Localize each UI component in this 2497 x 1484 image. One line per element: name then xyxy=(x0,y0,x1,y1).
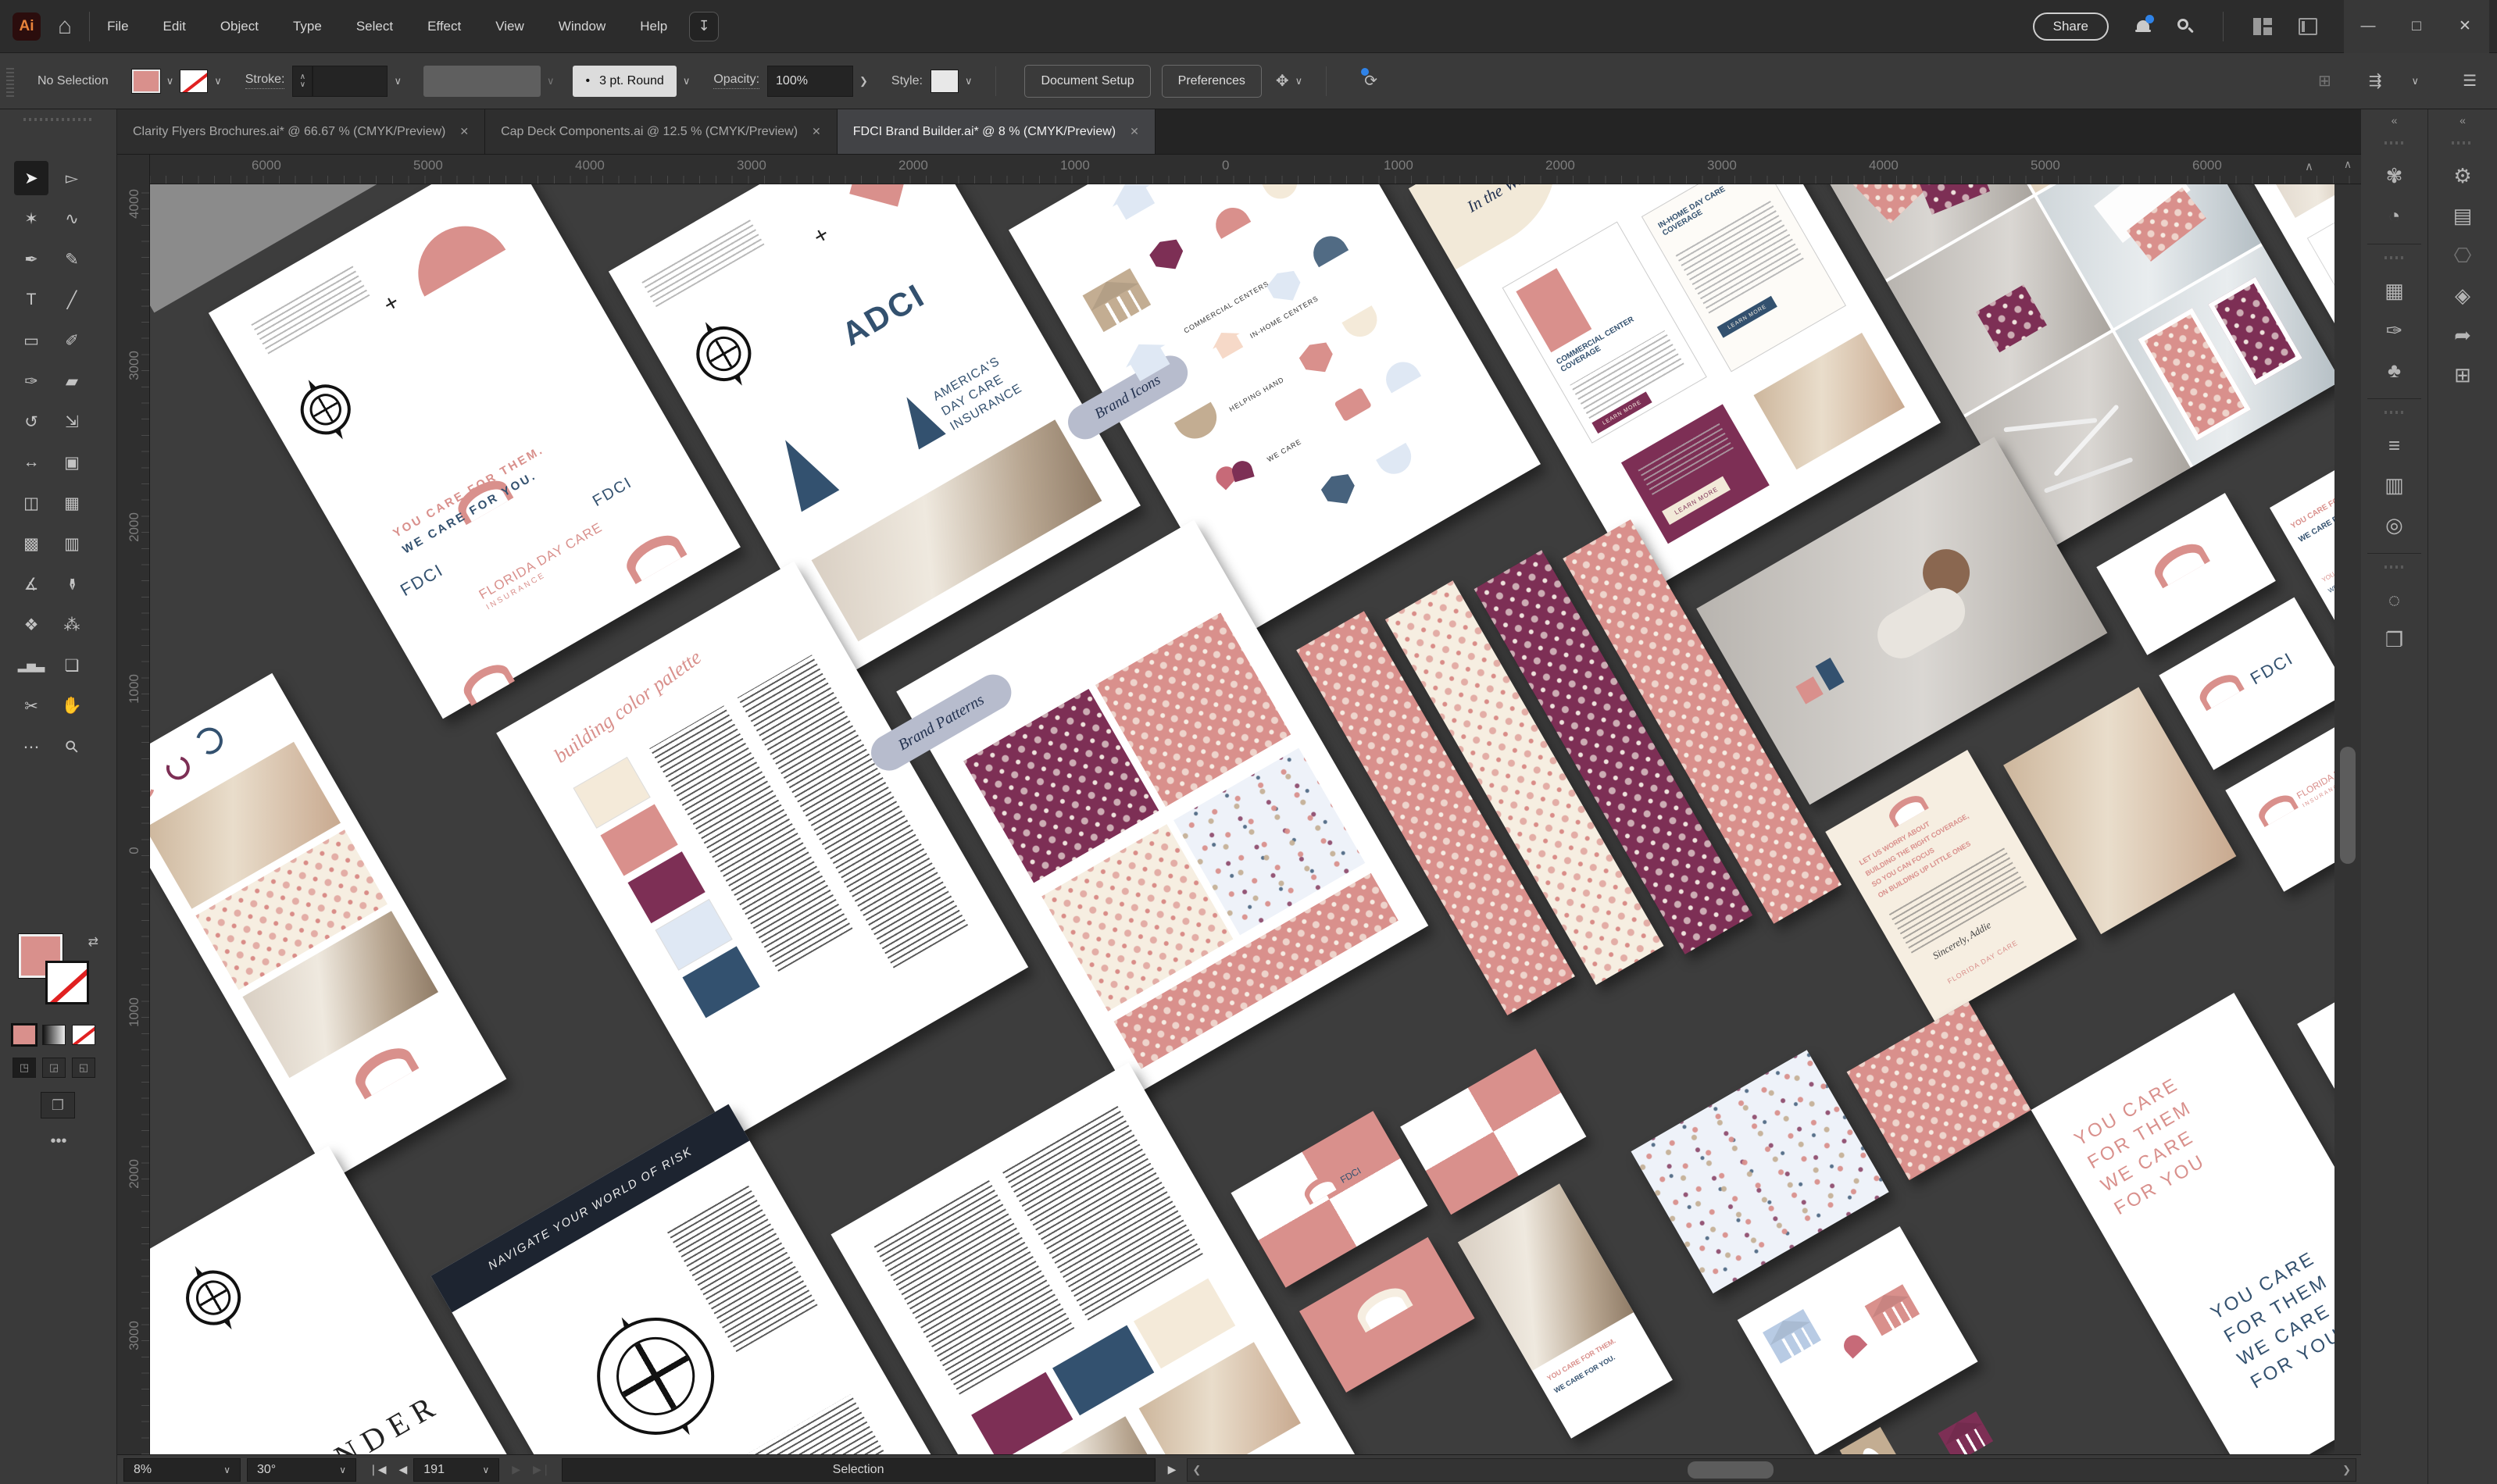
toy-block xyxy=(1816,658,1845,690)
scroll-left-icon[interactable]: ❮ xyxy=(1192,1464,1201,1476)
photo-tile xyxy=(1753,333,1905,469)
width-tool[interactable]: ↔ xyxy=(14,445,48,480)
tagline-pink: YOU CARE FOR THEM. xyxy=(391,443,546,540)
stroke-color-swatch[interactable] xyxy=(180,70,208,93)
fdci-wordmark: FDCI xyxy=(2247,648,2297,689)
zoom-tool[interactable]: ⚲ xyxy=(48,722,96,771)
artboard-chevron-icon: ∨ xyxy=(482,1464,489,1475)
ruler-label: 4000 xyxy=(127,188,142,219)
panel-drag-handle[interactable] xyxy=(2452,137,2474,148)
screen-mode-button[interactable]: ❐ xyxy=(41,1092,75,1118)
ruler-label: 2000 xyxy=(127,512,142,543)
pink-semicircle xyxy=(401,209,505,297)
vertical-ruler[interactable]: 4000 3000 2000 1000 0 1000 2000 3000 xyxy=(117,184,150,1454)
opacity-label[interactable]: Opacity: xyxy=(713,73,759,89)
next-artboard-button[interactable]: ▶ xyxy=(512,1463,520,1476)
sun-logo xyxy=(2255,790,2299,828)
sun-logo xyxy=(459,658,515,705)
sun-logo xyxy=(620,527,688,584)
select-similar-icon[interactable]: ✥ xyxy=(1276,71,1289,91)
opacity-value[interactable]: 100% xyxy=(767,66,853,97)
fill-stroke-proxy: ⇄ xyxy=(19,934,97,1009)
horizontal-ruler[interactable]: 6000 5000 4000 3000 2000 1000 0 1000 200… xyxy=(117,155,2361,184)
sun-glyph xyxy=(1352,1281,1413,1332)
house-icon xyxy=(1083,268,1152,332)
rotation-dropdown[interactable]: 30° ∨ xyxy=(247,1458,356,1482)
ruler-label: 3000 xyxy=(1707,158,1737,173)
scroll-up-icon[interactable]: ∧ xyxy=(2334,158,2361,171)
first-artboard-button[interactable]: ❘◀ xyxy=(369,1463,387,1476)
workspace-switcher-icon[interactable] xyxy=(2253,18,2272,35)
navy-block xyxy=(1052,1325,1154,1416)
close-button[interactable]: ✕ xyxy=(2441,17,2489,35)
ruler-label: 3000 xyxy=(737,158,766,173)
toolbar-drag-handle[interactable] xyxy=(23,114,93,125)
ruler-label: 3000 xyxy=(127,350,142,381)
artboard-girl-drawing-strip[interactable]: YOU CARE FOR THEM. WE CARE FOR YOU. xyxy=(1458,1184,1673,1439)
control-bar: No Selection ∨ ∨ Stroke: ∧ ∨ ∨ ∨ • 3 pt.… xyxy=(0,53,2497,109)
brushes-panel-icon[interactable]: ✑ xyxy=(2361,319,2427,343)
body-text xyxy=(641,218,765,308)
ruler-label: 0 xyxy=(1222,158,1229,173)
panel-separator xyxy=(2367,553,2421,554)
swatches-panel-icon[interactable]: ▦ xyxy=(2361,279,2427,303)
tab-close-icon[interactable]: ✕ xyxy=(812,125,821,138)
caption-we-care: WE CARE xyxy=(1266,437,1302,463)
gradient-tool[interactable]: ▥ xyxy=(55,526,89,561)
style-chevron-icon[interactable]: ∨ xyxy=(959,75,979,87)
house-icon xyxy=(1938,1411,1993,1454)
type-tool[interactable]: T xyxy=(14,283,48,317)
scroll-right-icon[interactable]: ❯ xyxy=(2342,1464,2351,1476)
brush-chevron-icon: ∨ xyxy=(541,75,561,87)
pink-diamond xyxy=(849,184,910,207)
navigate-text: NAVIGATE YOUR WORLD OF RISK xyxy=(486,1144,695,1272)
fill-color-swatch[interactable] xyxy=(132,70,160,93)
divider xyxy=(2223,12,2224,41)
artboard-swirl-card[interactable] xyxy=(150,673,506,1181)
menu-help[interactable]: Help xyxy=(640,19,667,34)
artboard-number-value: 191 xyxy=(423,1463,445,1477)
horizontal-scrollbar[interactable]: ❮ ❯ xyxy=(1187,1458,2356,1482)
hand-icon xyxy=(1376,443,1417,480)
stroke-label[interactable]: Stroke: xyxy=(245,73,285,89)
symbols-panel-icon[interactable]: ♣ xyxy=(2361,359,2427,383)
stroke-weight-stepper[interactable]: ∧ ∨ xyxy=(292,66,313,97)
pattern-pouch xyxy=(1841,184,1930,223)
sun-logo xyxy=(1301,1172,1340,1205)
photo-kids xyxy=(2237,184,2334,218)
toolbar-more-icon[interactable]: ••• xyxy=(0,1133,117,1150)
selection-status: No Selection xyxy=(38,74,109,88)
search-icon[interactable] xyxy=(2177,19,2193,34)
hand-tool[interactable]: ✋ xyxy=(55,689,89,723)
home-icon[interactable]: ⌂ xyxy=(58,13,72,40)
tab-fdci-brand-builder[interactable]: FDCI Brand Builder.ai* @ 8 % (CMYK/Previ… xyxy=(838,109,1156,154)
maximize-button[interactable]: □ xyxy=(2392,18,2441,35)
stroke-chevron-down-icon[interactable]: ∨ xyxy=(208,75,228,87)
fdci-wordmark: FDCI xyxy=(590,474,636,511)
direct-selection-tool[interactable]: ▻ xyxy=(55,161,89,195)
zoom-chevron-icon: ∨ xyxy=(223,1464,230,1475)
headphones-icon xyxy=(1307,230,1349,267)
rotation-value: 30° xyxy=(257,1463,276,1477)
width-profile-bullet: • xyxy=(585,74,590,88)
stepper-up-icon[interactable]: ∧ xyxy=(300,73,305,81)
house-icon xyxy=(1763,1309,1821,1364)
current-tool-status: Selection xyxy=(562,1458,1156,1482)
ruler-label: 1000 xyxy=(1384,158,1413,173)
tab-cap-deck[interactable]: Cap Deck Components.ai @ 12.5 % (CMYK/Pr… xyxy=(485,109,838,154)
artboard-pink-pattern-card[interactable] xyxy=(1847,1002,2031,1181)
free-transform-tool[interactable]: ▣ xyxy=(55,445,89,480)
select-similar-chevron-icon[interactable]: ∨ xyxy=(1289,75,1309,87)
fdci-wordmark: FDCI xyxy=(397,560,447,601)
ruler-label: 0 xyxy=(127,835,142,866)
minimize-button[interactable]: — xyxy=(2344,18,2392,35)
compass-logo-large xyxy=(576,1297,736,1454)
toolbar: ➤ ▻ ✶ ∿ ✒ ✎ T ╱ ▭ ✐ ✑ ▰ ↺ ⇲ ↔ ▣ ◫ ▦ ▩ ▥ … xyxy=(0,109,117,1484)
draw-mode-buttons: ◳ ◲ ◱ xyxy=(13,1058,95,1078)
body-text xyxy=(666,1183,818,1352)
artboard-number-dropdown[interactable]: 191 ∨ xyxy=(413,1458,499,1482)
pattern-clutch xyxy=(1976,284,2047,352)
helping-hand-icon xyxy=(1174,402,1224,446)
stroke-proxy-swatch[interactable] xyxy=(45,961,89,1004)
menu-object[interactable]: Object xyxy=(220,19,259,34)
transparency-panel-icon[interactable]: ◎ xyxy=(2361,513,2427,537)
stroke-weight-value[interactable] xyxy=(313,66,388,97)
illustrator-logo[interactable]: Ai xyxy=(13,12,41,41)
plus-mark: + xyxy=(379,289,404,319)
gradient-panel-icon[interactable]: ▥ xyxy=(2361,473,2427,498)
menu-effect[interactable]: Effect xyxy=(427,19,461,34)
house-icon xyxy=(1208,325,1247,361)
sun-logo xyxy=(348,1040,419,1099)
stroke-panel-icon[interactable]: ≡ xyxy=(2361,433,2427,458)
color-panel-icon[interactable]: ✾ xyxy=(2361,164,2427,188)
florida-wordmark: FLORIDA DAY CARE xyxy=(477,519,605,603)
artboard-color-palette[interactable]: building color palette xyxy=(496,562,1028,1140)
compass-logo xyxy=(176,1261,251,1336)
panel-toggle-icon[interactable] xyxy=(2299,18,2317,35)
opacity-expand-icon[interactable]: ❯ xyxy=(853,75,874,87)
panel-separator xyxy=(2367,398,2421,399)
right-dock: « ✾ ◔ ▦ ✑ ♣ ≡ ▥ ◎ ◌ ❐ « ⚙ ▤ ⎔ ◈ ➦ ⊞ xyxy=(2361,109,2497,1484)
divider xyxy=(1326,66,1327,96)
hand-icon xyxy=(1341,305,1383,343)
notifications-bell-icon[interactable] xyxy=(2135,19,2151,34)
horizontal-scroll-thumb[interactable] xyxy=(1688,1461,1774,1479)
ruler-corner[interactable] xyxy=(117,155,150,184)
status-expand-icon[interactable]: ▶ xyxy=(1168,1463,1177,1476)
arrange-chevron-icon[interactable]: ∨ xyxy=(2406,75,2426,87)
compass-logo xyxy=(291,376,359,444)
ruler-label: 1000 xyxy=(127,997,142,1028)
swap-fill-stroke-icon[interactable]: ⇄ xyxy=(88,934,98,950)
ruler-label: 1000 xyxy=(127,673,142,705)
a-mark xyxy=(766,429,839,512)
ruler-label: 1000 xyxy=(1060,158,1090,173)
shield-icon xyxy=(1146,234,1189,277)
color-button[interactable] xyxy=(13,1025,36,1045)
rotated-scene: + YOU CARE FOR THEM. WE CARE FOR YOU. FD… xyxy=(150,184,2334,1454)
panel-drag-handle[interactable] xyxy=(2384,252,2404,263)
tab-title: FDCI Brand Builder.ai* @ 8 % (CMYK/Previ… xyxy=(853,125,1116,139)
cloud-sync-icon[interactable]: ⟳ xyxy=(1364,71,1377,91)
arch-icon xyxy=(1840,1427,1898,1454)
ruler-label: 4000 xyxy=(575,158,605,173)
search-lens xyxy=(2177,19,2188,30)
welcome-line2: BUILDING THE RIGHT COVERAGE, xyxy=(1864,812,1970,877)
pen xyxy=(2003,418,2097,433)
mesh-tool[interactable]: ▩ xyxy=(14,526,48,561)
layers-panel-icon[interactable]: ◈ xyxy=(2428,284,2497,308)
canvas[interactable]: + YOU CARE FOR THEM. WE CARE FOR YOU. FD… xyxy=(150,184,2334,1454)
width-profile-chevron-icon[interactable]: ∨ xyxy=(677,75,697,87)
collapse-panel-icon[interactable]: « xyxy=(2428,109,2497,133)
slice-tool[interactable]: ✂ xyxy=(14,689,48,723)
hand-icon xyxy=(1262,184,1303,205)
divider xyxy=(89,12,90,41)
appearance-panel-icon[interactable]: ◌ xyxy=(2361,588,2427,612)
house-icon xyxy=(1106,184,1159,223)
ruler-label: 6000 xyxy=(252,158,281,173)
tab-title: Cap Deck Components.ai @ 12.5 % (CMYK/Pr… xyxy=(501,125,798,139)
fill-chevron-down-icon[interactable]: ∨ xyxy=(160,75,180,87)
headphones-icon xyxy=(1380,355,1421,393)
brand-icons-label: Brand Icons xyxy=(1062,349,1194,445)
ruler-label: 2000 xyxy=(1545,158,1575,173)
document-setup-button[interactable]: Document Setup xyxy=(1024,65,1150,98)
rotate-tool[interactable]: ↺ xyxy=(14,405,48,439)
house-icon xyxy=(1865,1284,1920,1336)
body-text xyxy=(251,265,370,355)
panel-drag-handle[interactable] xyxy=(2384,137,2404,148)
shape-builder-tool[interactable]: ◫ xyxy=(14,486,48,520)
color-mode-buttons xyxy=(13,1025,95,1045)
compass-logo xyxy=(687,316,762,391)
caption-helping-hand: HELPING HAND xyxy=(1228,376,1286,413)
menu-select[interactable]: Select xyxy=(356,19,393,34)
menu-edit[interactable]: Edit xyxy=(163,19,186,34)
panel-drag-handle[interactable] xyxy=(2384,407,2404,418)
menu-bar: File Edit Object Type Select Effect View… xyxy=(107,19,667,34)
swirl-doodle xyxy=(191,722,227,758)
paintbrush-tool[interactable]: ✐ xyxy=(55,323,89,358)
pen-tool[interactable]: ✒ xyxy=(14,242,48,276)
stroke-weight-chevron-icon[interactable]: ∨ xyxy=(388,75,408,87)
menu-file[interactable]: File xyxy=(107,19,128,34)
perspective-grid-tool[interactable]: ▦ xyxy=(55,486,89,520)
panel-drag-handle[interactable] xyxy=(2384,562,2404,573)
artboard-icons-scatter[interactable] xyxy=(1738,1226,1978,1454)
tab-close-icon[interactable]: ✕ xyxy=(1130,125,1139,138)
ruler-label: 5000 xyxy=(2031,158,2060,173)
panel-separator xyxy=(2367,244,2421,244)
menu-view[interactable]: View xyxy=(495,19,524,34)
cream-block xyxy=(1134,1279,1235,1369)
zoom-level-dropdown[interactable]: 8% ∨ xyxy=(123,1458,241,1482)
vertical-scrollbar[interactable]: ∧ xyxy=(2334,184,2361,1454)
artboards-panel-icon[interactable]: ⊞ xyxy=(2428,363,2497,387)
plus-mark: + xyxy=(809,221,834,251)
ruler-label: 5000 xyxy=(413,158,443,173)
draw-normal-mode[interactable]: ◳ xyxy=(13,1058,36,1078)
share-button[interactable]: Share xyxy=(2033,12,2109,41)
libraries-panel-icon[interactable]: ▤ xyxy=(2428,204,2497,228)
folder-icon xyxy=(1334,387,1372,422)
stepper-down-icon[interactable]: ∨ xyxy=(300,81,305,89)
app-bar: Ai ⌂ File Edit Object Type Select Effect… xyxy=(0,0,2497,53)
column-graph-tool[interactable]: ▂▅▃ xyxy=(14,648,48,683)
heart-icon xyxy=(1230,458,1255,482)
notification-badge xyxy=(2145,15,2154,23)
tab-clarity-flyers[interactable]: Clarity Flyers Brochures.ai* @ 66.67 % (… xyxy=(117,109,485,154)
swirl-doodle xyxy=(162,752,194,784)
variable-width-profile-dropdown[interactable]: • 3 pt. Round xyxy=(573,66,676,97)
maroon-card: LEARN MORE xyxy=(1621,404,1770,544)
artboard-house-card-navy[interactable] xyxy=(2297,938,2334,1139)
width-profile-value: 3 pt. Round xyxy=(599,74,664,88)
shield-icon xyxy=(1263,266,1306,309)
shield-icon xyxy=(1169,184,1212,191)
3d-panel-icon[interactable]: ⎔ xyxy=(2428,244,2497,268)
artboard-poster[interactable]: YOU CARE FOR THEM WE CARE FOR YOU YOU CA… xyxy=(2031,993,2334,1454)
brush-definition-dropdown[interactable] xyxy=(423,66,541,97)
rectangle-tool[interactable]: ▭ xyxy=(14,323,48,358)
properties-panel-icon[interactable]: ⚙ xyxy=(2428,164,2497,188)
draw-behind-mode[interactable]: ◲ xyxy=(42,1058,66,1078)
blend-tool[interactable]: ❖ xyxy=(14,608,48,642)
ruler-collapse-icon[interactable]: ∧ xyxy=(2305,159,2313,173)
letrander-wordmark: LETRANDER xyxy=(207,1386,447,1454)
toy-block xyxy=(1795,676,1824,705)
search-tail xyxy=(2188,27,2194,33)
last-artboard-button[interactable]: ▶❘ xyxy=(533,1463,551,1476)
symbol-sprayer-tool[interactable]: ⁂ xyxy=(55,608,89,642)
none-button[interactable] xyxy=(72,1025,95,1045)
align-grid-icon: ⊞ xyxy=(2318,71,2331,91)
maroon-block xyxy=(971,1372,1073,1454)
ruler-label: 2000 xyxy=(898,158,928,173)
tab-title: Clarity Flyers Brochures.ai* @ 66.67 % (… xyxy=(133,125,445,139)
ruler-label: 4000 xyxy=(1869,158,1899,173)
fdci-wordmark: FDCI xyxy=(1338,1165,1363,1186)
document-tab-strip: Clarity Flyers Brochures.ai* @ 66.67 % (… xyxy=(117,109,2361,155)
discover-icon[interactable]: ↧ xyxy=(689,12,719,41)
tab-close-icon[interactable]: ✕ xyxy=(459,125,469,138)
sun-logo xyxy=(2149,537,2210,588)
window-controls: — □ ✕ xyxy=(2344,0,2489,53)
draw-inside-mode[interactable]: ◱ xyxy=(72,1058,95,1078)
shield-icon xyxy=(1318,469,1361,512)
scale-tool[interactable]: ⇲ xyxy=(55,405,89,439)
shield-icon xyxy=(1296,337,1339,380)
bell-base xyxy=(2135,30,2151,32)
swirl-doodle xyxy=(150,765,160,808)
adci-wordmark: ADCI xyxy=(835,276,931,353)
edit-toolbar-button[interactable]: ⋯ xyxy=(14,730,48,764)
style-swatch[interactable] xyxy=(931,70,959,93)
doc-color-block xyxy=(1516,268,1591,352)
menu-window[interactable]: Window xyxy=(559,19,605,34)
measure-tool[interactable]: ∡ xyxy=(14,567,48,601)
ruler-label: 6000 xyxy=(2192,158,2222,173)
headphones-icon xyxy=(1209,202,1251,239)
style-label: Style: xyxy=(891,74,923,88)
collapse-panel-icon[interactable]: « xyxy=(2361,109,2427,133)
export-panel-icon[interactable]: ➦ xyxy=(2428,323,2497,348)
preferences-button[interactable]: Preferences xyxy=(1162,65,1262,98)
graphic-styles-panel-icon[interactable]: ❐ xyxy=(2361,628,2427,652)
menu-list-icon[interactable]: ☰ xyxy=(2463,71,2477,91)
artboard-tool[interactable]: ❏ xyxy=(55,648,89,683)
ruler-label: 3000 xyxy=(127,1320,142,1351)
lasso-tool[interactable]: ∿ xyxy=(55,202,89,236)
artboard-brand-patterns[interactable]: Brand Patterns xyxy=(896,520,1428,1098)
eraser-tool[interactable]: ▰ xyxy=(55,364,89,398)
sun-logo xyxy=(2195,669,2244,711)
control-bar-grip[interactable] xyxy=(6,66,14,97)
heart-icon xyxy=(1840,1331,1867,1358)
eyedropper-tool[interactable]: ✒ xyxy=(55,567,89,601)
gradient-button[interactable] xyxy=(42,1025,66,1045)
caption-commercial: COMMERCIAL CENTERS xyxy=(1183,280,1271,335)
curvature-tool[interactable]: ✎ xyxy=(55,242,89,276)
tagline-pink-small: YOU CARE FOR THEM. xyxy=(2320,543,2334,583)
menu-type[interactable]: Type xyxy=(293,19,322,34)
arrange-icon[interactable]: ⇶ xyxy=(2369,71,2382,91)
previous-artboard-button[interactable]: ◀ xyxy=(399,1463,408,1476)
zoom-level-value: 8% xyxy=(134,1463,152,1477)
status-bar: 8% ∨ 30° ∨ ❘◀ ◀ 191 ∨ ▶ ▶❘ Selection ▶ ❮… xyxy=(117,1454,2361,1484)
shaper-tool[interactable]: ✑ xyxy=(14,364,48,398)
vertical-scroll-thumb[interactable] xyxy=(2340,747,2356,864)
line-tool[interactable]: ╱ xyxy=(55,283,89,317)
color-guide-panel-icon[interactable]: ◔ xyxy=(2361,204,2427,228)
ruler-label: 2000 xyxy=(127,1158,142,1190)
rotation-chevron-icon: ∨ xyxy=(339,1464,346,1475)
selection-tool[interactable]: ➤ xyxy=(14,161,48,195)
magic-wand-tool[interactable]: ✶ xyxy=(14,202,48,236)
caption-inhome: IN-HOME CENTERS xyxy=(1248,294,1320,340)
divider xyxy=(995,66,996,96)
